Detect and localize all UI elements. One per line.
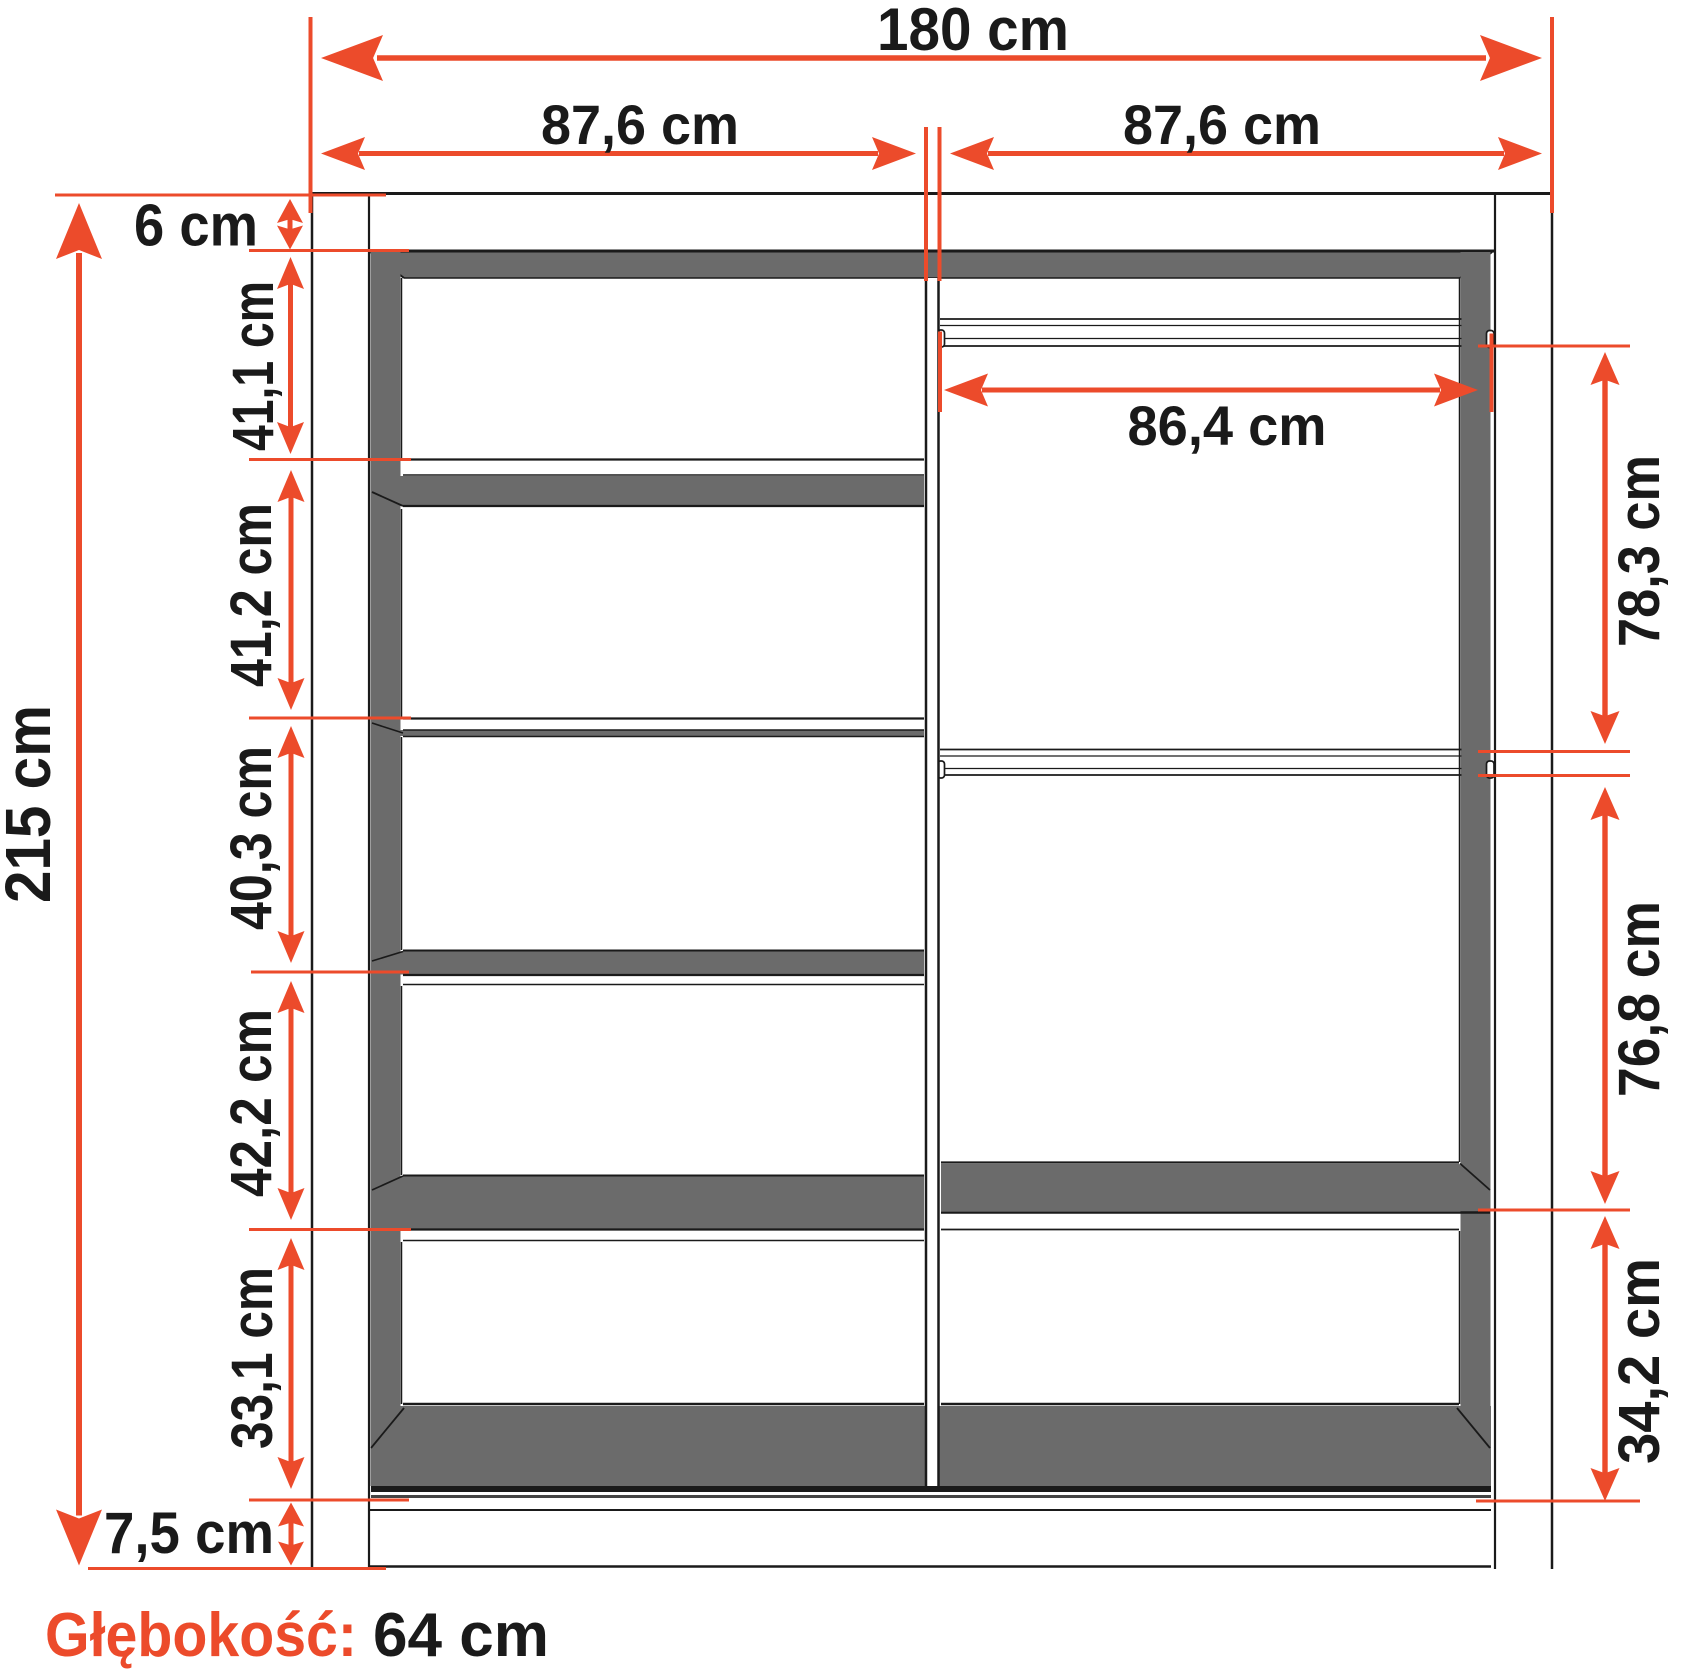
svg-text:41,1 cm: 41,1 cm (221, 281, 286, 451)
svg-text:34,2 cm: 34,2 cm (1607, 1258, 1672, 1464)
svg-text:86,4 cm: 86,4 cm (1128, 394, 1327, 457)
svg-text:78,3 cm: 78,3 cm (1607, 455, 1672, 647)
svg-text:41,2 cm: 41,2 cm (219, 503, 284, 687)
svg-text:40,3 cm: 40,3 cm (219, 746, 284, 930)
svg-text:180 cm: 180 cm (877, 0, 1069, 63)
svg-text:33,1 cm: 33,1 cm (220, 1267, 285, 1449)
svg-text:64 cm: 64 cm (373, 1601, 549, 1670)
svg-text:87,6 cm: 87,6 cm (541, 93, 739, 156)
svg-text:76,8 cm: 76,8 cm (1607, 901, 1672, 1097)
svg-text:Głębokość:: Głębokość: (45, 1601, 357, 1670)
svg-text:7,5 cm: 7,5 cm (104, 1501, 274, 1566)
svg-text:42,2 cm: 42,2 cm (219, 1009, 284, 1197)
svg-text:87,6 cm: 87,6 cm (1123, 93, 1321, 156)
svg-text:215 cm: 215 cm (0, 705, 64, 903)
svg-text:6 cm: 6 cm (134, 193, 258, 259)
